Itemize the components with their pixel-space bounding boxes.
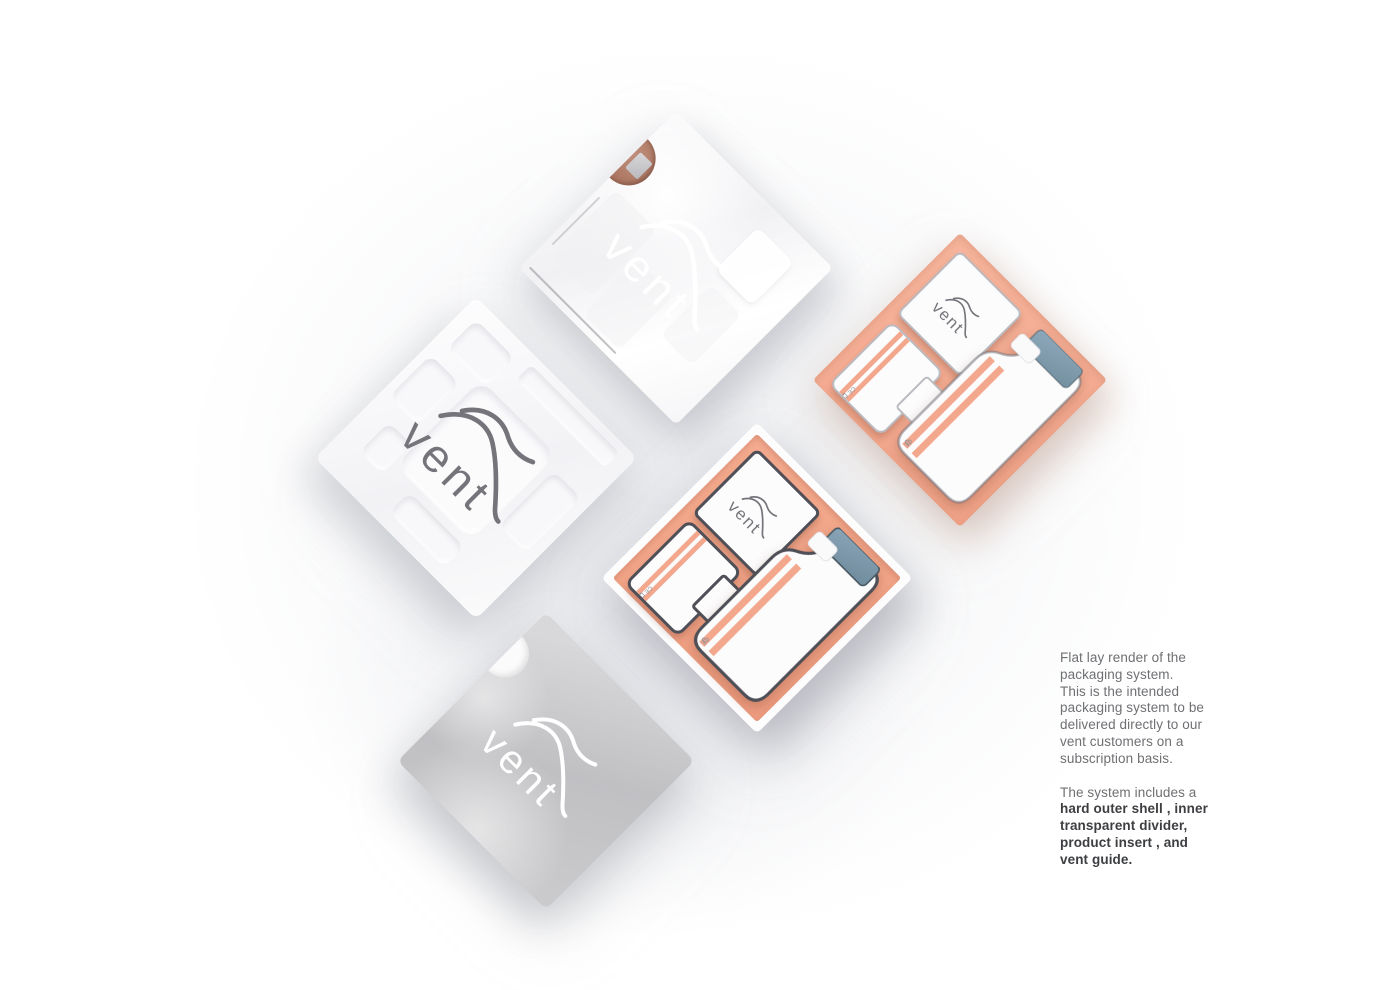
product-box-open: vent CE	[647, 468, 867, 688]
caption-paragraph-2-bold: hard outer shell , inner transparent div…	[1060, 801, 1220, 868]
caption-paragraph-2: The system includes a hard outer shell ,…	[1060, 785, 1220, 869]
box-insert: vent CE	[613, 434, 901, 722]
device-stripe	[643, 537, 707, 601]
foam-face: vent	[315, 297, 637, 619]
hard-outer-shell-box: vent	[565, 157, 787, 379]
sleeve-face: vent	[398, 613, 695, 910]
device-stripe	[846, 338, 910, 402]
main-device-bottle: CE	[886, 308, 1092, 514]
main-device-bottle: CE	[683, 506, 889, 712]
caption-paragraph-2-intro: The system includes a	[1060, 785, 1220, 802]
vent-logo: vent	[924, 277, 997, 350]
bottle-shape	[683, 506, 889, 712]
bottle-shape	[886, 308, 1092, 514]
caption-paragraph-1: Flat lay render of the packaging system.…	[1060, 650, 1220, 768]
frosted-sleeve: vent	[441, 656, 651, 866]
product-insert-tray: vent CE	[856, 276, 1064, 484]
caption: Flat lay render of the packaging system.…	[1060, 650, 1220, 869]
packaging-flat-lay-render: vent vent	[0, 0, 1400, 990]
foam-insert-tray: vent	[362, 344, 590, 572]
